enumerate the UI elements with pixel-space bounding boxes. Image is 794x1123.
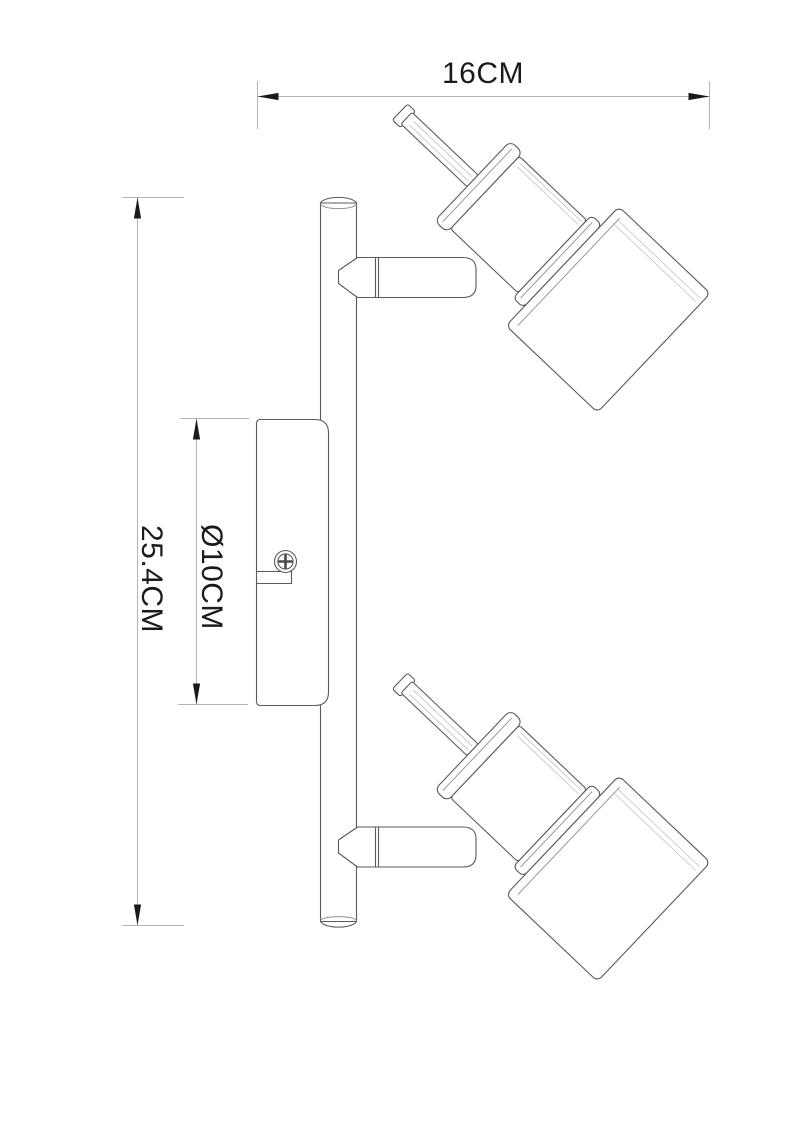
spotlight-dimension-drawing <box>0 0 794 1123</box>
swivel-arm-top <box>339 258 477 298</box>
arrow-right-icon <box>689 93 710 100</box>
swivel-arm-bottom <box>339 827 477 867</box>
rail-bottom-cap <box>321 922 357 928</box>
spotlight-head-bottom <box>344 622 711 982</box>
canopy-diameter-label: Ø10CM <box>194 507 228 647</box>
spotlight-head-top <box>344 53 711 413</box>
arrow-up-icon <box>134 198 141 219</box>
height-dimension-label: 25.4CM <box>134 509 168 649</box>
arrow-down-icon <box>193 684 200 705</box>
arrow-up-icon <box>193 419 200 440</box>
arrow-down-icon <box>134 905 141 926</box>
width-dimension-label: 16CM <box>403 57 563 91</box>
rail-top-cap <box>321 197 357 203</box>
arrow-left-icon <box>258 93 279 100</box>
technical-drawing-page: 16CM 25.4CM Ø10CM <box>0 0 794 1123</box>
mounting-screw <box>275 551 297 573</box>
